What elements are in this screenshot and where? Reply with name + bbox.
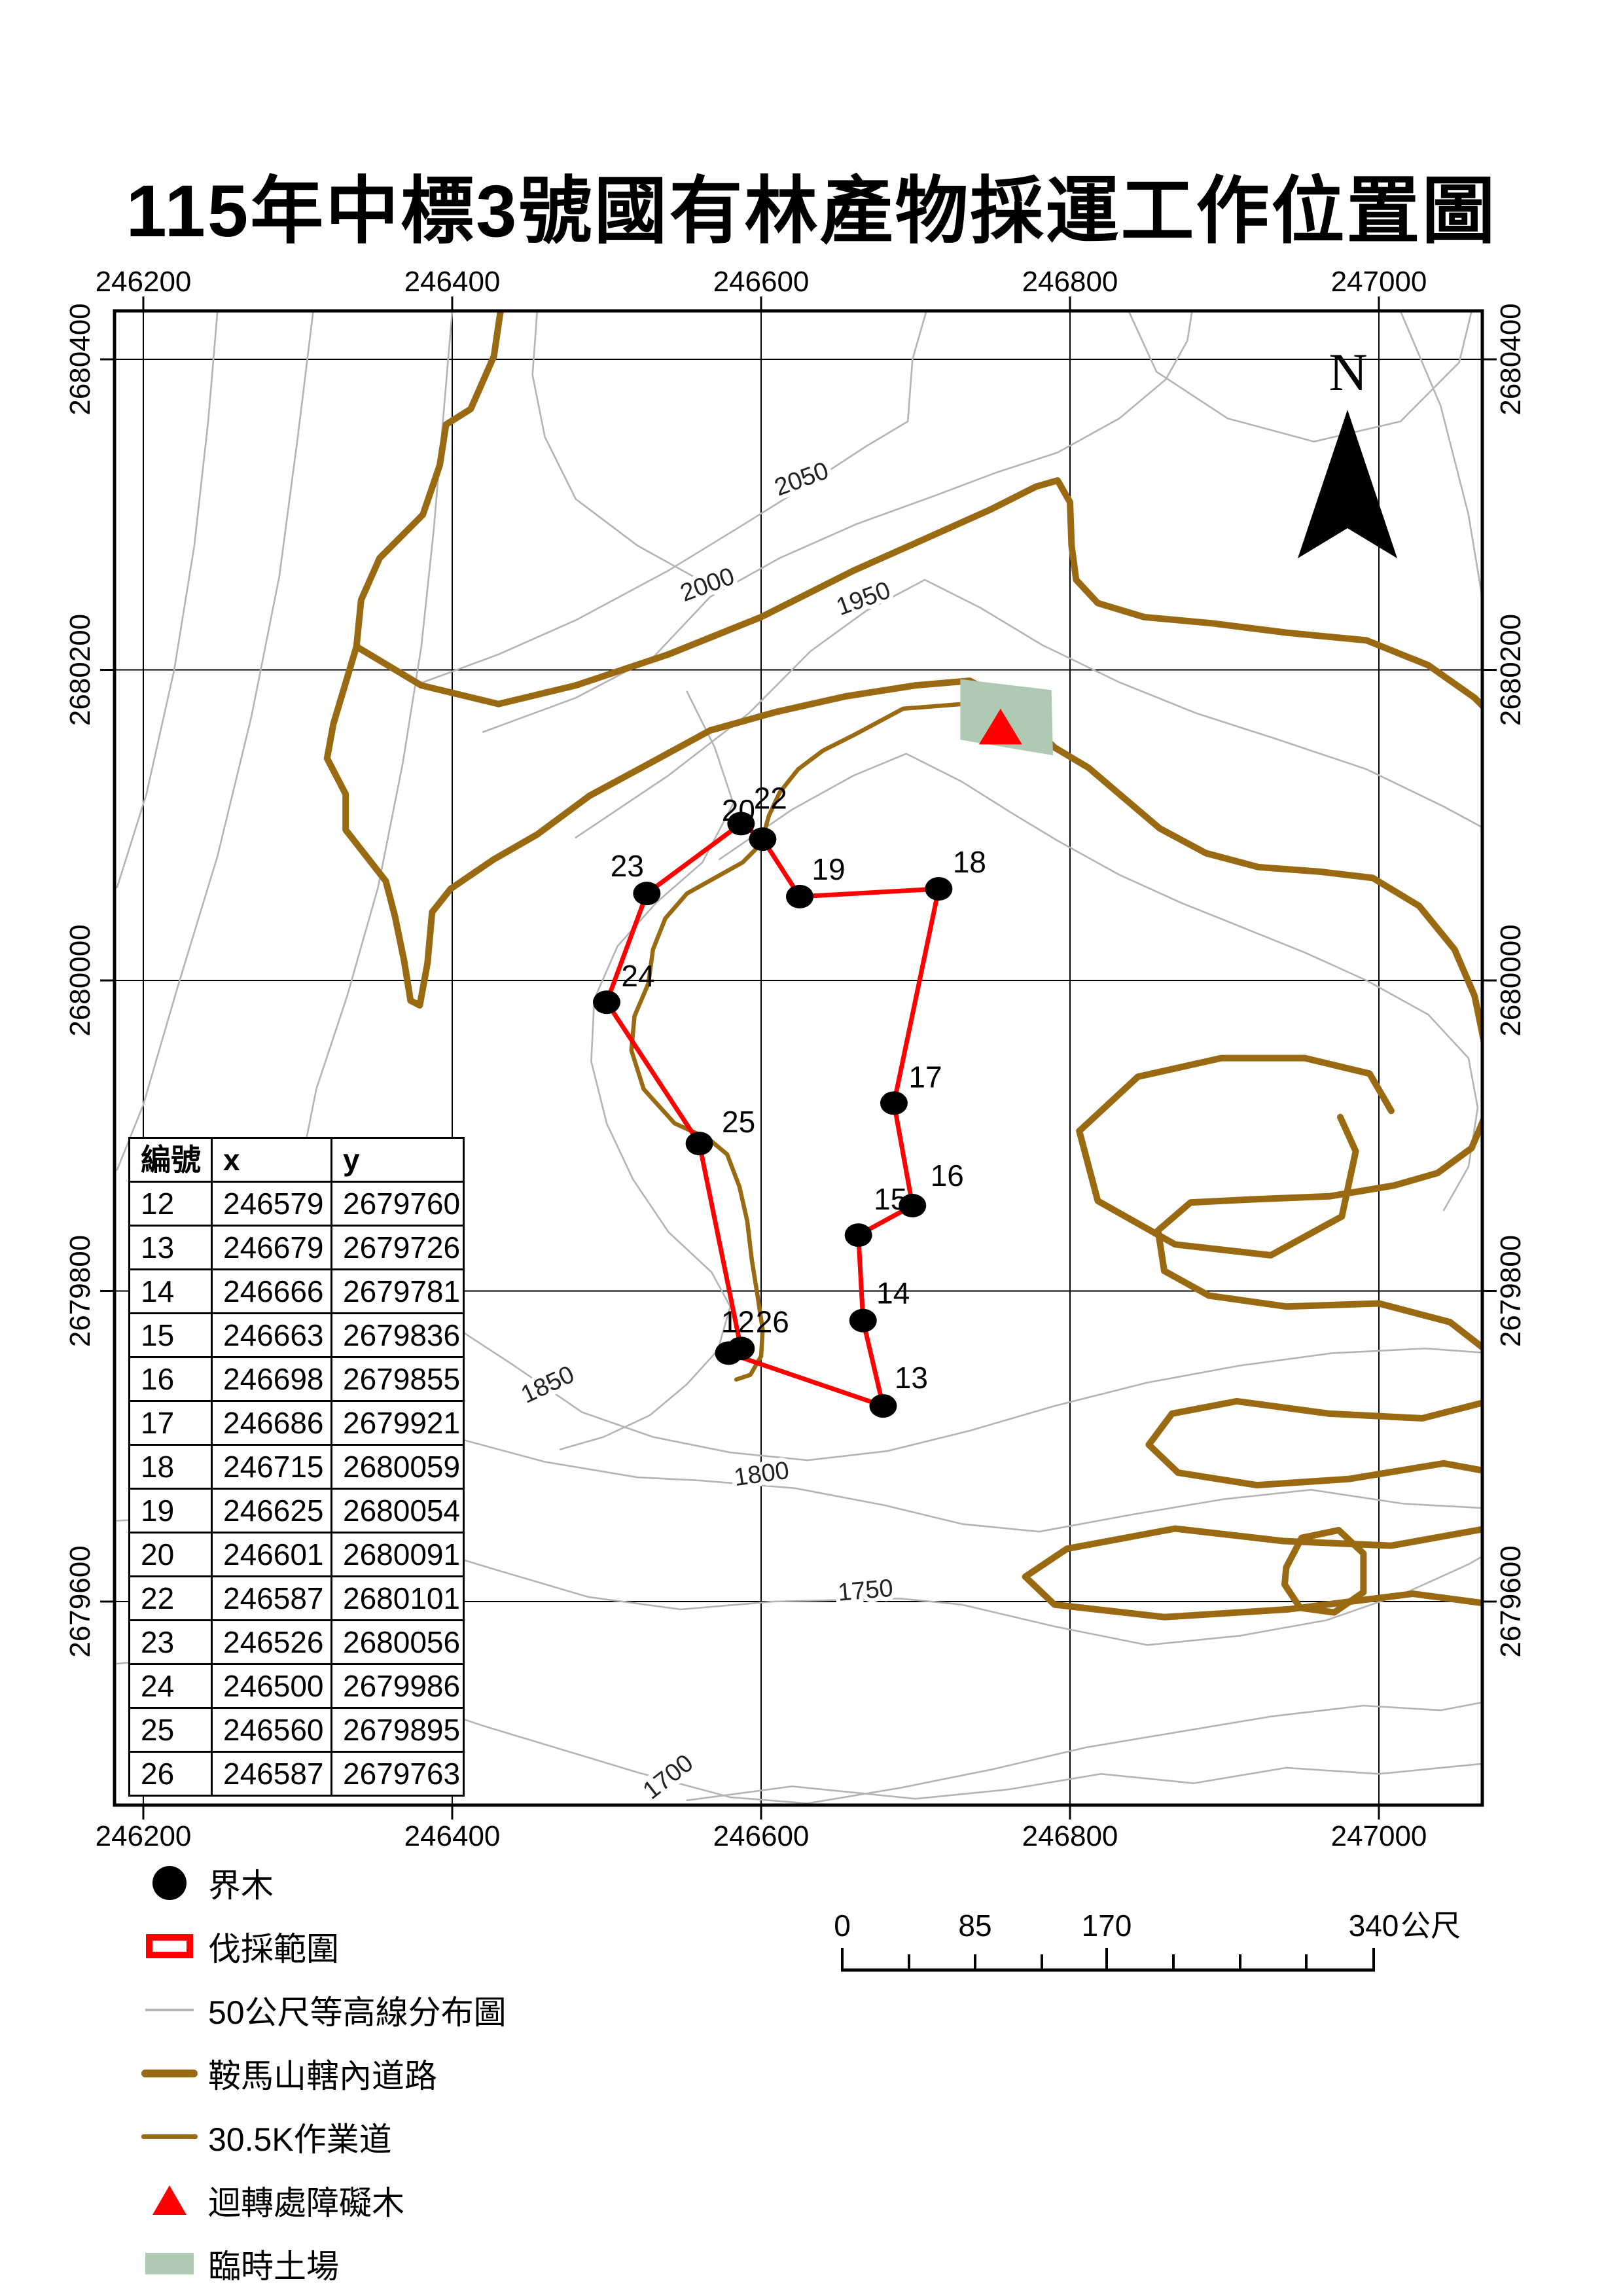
axis-label-right: 2680200 (1495, 614, 1527, 726)
boundary-tree-point (899, 1194, 926, 1217)
legend-label: 伐採範圍 (208, 1923, 339, 1970)
boundary-tree-label: 19 (811, 852, 845, 886)
axis-label-top: 246600 (713, 266, 810, 298)
table-cell: 246686 (212, 1401, 332, 1445)
table-cell: 246666 (212, 1270, 332, 1314)
boundary-tree-label: 26 (756, 1304, 789, 1338)
table-row: 202466012680091 (130, 1533, 464, 1577)
coordinate-table-body: 1224657926797601324667926797261424666626… (130, 1182, 464, 1796)
table-cell: 20 (130, 1533, 212, 1577)
legend-rect-green-icon (131, 2253, 208, 2274)
legend-item: 50公尺等高線分布圖 (131, 1978, 507, 2041)
axis-label-left: 2680400 (64, 303, 96, 415)
contour-label: 1750 (836, 1575, 894, 1607)
legend-label: 臨時土場 (208, 2240, 339, 2287)
north-arrow-icon (1298, 410, 1397, 558)
legend-label: 30.5K作業道 (208, 2113, 392, 2161)
table-cell: 2680101 (332, 1577, 464, 1621)
boundary-tree-label: 23 (611, 849, 644, 883)
road-main (1079, 1058, 1391, 1255)
table-cell: 13 (130, 1226, 212, 1270)
table-row: 172466862679921 (130, 1401, 464, 1445)
contour-label: 2050 (771, 457, 832, 501)
coordinate-table-header: 編號xy (130, 1138, 464, 1182)
table-cell: 2679763 (332, 1752, 464, 1796)
contour-line (423, 312, 926, 683)
table-cell: 2679836 (332, 1314, 464, 1357)
table-cell: 2679726 (332, 1226, 464, 1270)
table-cell: 2680091 (332, 1533, 464, 1577)
boundary-tree-point (786, 885, 813, 908)
axis-label-bottom: 246600 (713, 1820, 810, 1852)
table-cell: 25 (130, 1708, 212, 1752)
road-work (632, 704, 962, 1380)
coordinate-table: 編號xy 12246579267976013246679267972614246… (128, 1137, 465, 1797)
table-cell: 246526 (212, 1621, 332, 1664)
boundary-tree-label: 22 (754, 781, 787, 815)
boundary-tree-point (633, 882, 660, 905)
boundary-tree-point (849, 1309, 877, 1333)
table-cell: 2680054 (332, 1489, 464, 1533)
table-cell: 246560 (212, 1708, 332, 1752)
table-cell: 19 (130, 1489, 212, 1533)
table-cell: 2679921 (332, 1401, 464, 1445)
contour-line (310, 1235, 1490, 1460)
axis-label-left: 2679600 (64, 1545, 96, 1657)
table-cell: 2679760 (332, 1182, 464, 1226)
legend-item: 30.5K作業道 (131, 2105, 507, 2168)
legend-tri-red-icon (131, 2185, 208, 2215)
boundary-tree-point (686, 1132, 713, 1155)
scalebar-unit: 公尺 (1400, 1909, 1461, 1943)
axis-label-bottom: 246800 (1022, 1820, 1118, 1852)
legend-item: 迴轉處障礙木 (131, 2168, 507, 2232)
contour-line (483, 312, 1192, 732)
table-header-row: 編號xy (130, 1138, 464, 1182)
contour-line (533, 312, 700, 580)
table-row: 252465602679895 (130, 1708, 464, 1752)
boundary-tree-label: 24 (621, 959, 654, 993)
legend-label: 鞍馬山轄內道路 (208, 2050, 437, 2097)
axis-label-left: 2679800 (64, 1235, 96, 1347)
contour-line (117, 312, 217, 888)
axis-label-top: 246200 (96, 266, 192, 298)
table-cell: 2679855 (332, 1357, 464, 1401)
table-row: 152466632679836 (130, 1314, 464, 1357)
boundary-tree-label: 12 (721, 1304, 755, 1338)
legend-label: 50公尺等高線分布圖 (208, 1986, 507, 2034)
contour-line (560, 692, 733, 1450)
scalebar-label: 340 (1349, 1909, 1399, 1943)
table-row: 242465002679986 (130, 1664, 464, 1708)
table-cell: 246587 (212, 1577, 332, 1621)
table-cell: 26 (130, 1752, 212, 1796)
table-cell: 246698 (212, 1357, 332, 1401)
axis-label-bottom: 246200 (96, 1820, 192, 1852)
legend-line-gray-icon (131, 2009, 208, 2011)
table-cell: 246625 (212, 1489, 332, 1533)
axis-label-right: 2680000 (1495, 924, 1527, 1036)
road-main (1149, 1400, 1495, 1486)
legend-item: 臨時土場 (131, 2232, 507, 2295)
contour-label: 1700 (638, 1749, 698, 1805)
axis-label-right: 2680400 (1495, 303, 1527, 415)
boundary-tree-label: 16 (931, 1158, 964, 1193)
boundary-tree-label: 18 (953, 845, 986, 879)
axis-label-right: 2679600 (1495, 1545, 1527, 1657)
table-row: 122465792679760 (130, 1182, 464, 1226)
axis-label-bottom: 246400 (404, 1820, 501, 1852)
boundary-tree-point (593, 990, 620, 1014)
boundary-tree-point (880, 1091, 908, 1115)
legend: 界木伐採範圍50公尺等高線分布圖鞍馬山轄內道路30.5K作業道迴轉處障礙木臨時土… (131, 1851, 507, 2295)
table-cell: 2679781 (332, 1270, 464, 1314)
scalebar-label: 0 (834, 1909, 851, 1943)
table-row: 262465872679763 (130, 1752, 464, 1796)
legend-label: 迴轉處障礙木 (208, 2177, 404, 2224)
axis-label-top: 246400 (404, 266, 501, 298)
axis-label-left: 2680200 (64, 614, 96, 726)
table-cell: 2679986 (332, 1664, 464, 1708)
table-row: 132466792679726 (130, 1226, 464, 1270)
boundary-tree-label: 25 (722, 1105, 755, 1139)
boundary-tree-label: 14 (876, 1276, 910, 1310)
boundary-tree-point (869, 1394, 897, 1418)
table-cell: 16 (130, 1357, 212, 1401)
legend-rect-red-icon (131, 1934, 208, 1958)
legend-item: 界木 (131, 1851, 507, 1914)
table-row: 222465872680101 (130, 1577, 464, 1621)
contour-line (117, 312, 313, 1170)
table-row: 162466982679855 (130, 1357, 464, 1401)
table-cell: 246500 (212, 1664, 332, 1708)
contour-line (719, 754, 1478, 1211)
contour-label: 1850 (517, 1361, 579, 1409)
table-cell: 2680059 (332, 1445, 464, 1489)
legend-line-thick-icon (131, 2070, 208, 2077)
table-cell: 246587 (212, 1752, 332, 1796)
table-cell: 12 (130, 1182, 212, 1226)
table-cell: 2680056 (332, 1621, 464, 1664)
contour-line (452, 1437, 1490, 1532)
boundary-tree-point (925, 877, 952, 901)
legend-item: 伐採範圍 (131, 1914, 507, 1978)
boundary-tree-point (749, 827, 776, 851)
table-cell: 246679 (212, 1226, 332, 1270)
table-row: 232465262680056 (130, 1621, 464, 1664)
legend-line-thin-icon (131, 2134, 208, 2139)
table-cell: 17 (130, 1401, 212, 1445)
table-cell: 2679895 (332, 1708, 464, 1752)
table-cell: 22 (130, 1577, 212, 1621)
table-cell: 24 (130, 1664, 212, 1708)
contour-line (1400, 312, 1490, 655)
table-cell: 246663 (212, 1314, 332, 1357)
table-header-cell: y (332, 1138, 464, 1182)
table-cell: 15 (130, 1314, 212, 1357)
page: 115年中標3號國有林產物採運工作位置圖 2050200019501850180… (0, 0, 1623, 2296)
contour-line (687, 1763, 1490, 1801)
contour-label: 1950 (832, 577, 894, 621)
legend-label: 界木 (208, 1859, 274, 1907)
boundary-tree-point (845, 1223, 872, 1247)
legend-item: 鞍馬山轄內道路 (131, 2041, 507, 2105)
table-header-cell: 編號 (130, 1138, 212, 1182)
scalebar-label: 85 (958, 1909, 991, 1943)
north-label: N (1329, 342, 1367, 402)
axis-label-top: 246800 (1022, 266, 1118, 298)
table-row: 182467152680059 (130, 1445, 464, 1489)
axis-label-bottom: 247000 (1331, 1820, 1427, 1852)
table-cell: 18 (130, 1445, 212, 1489)
axis-label-left: 2680000 (64, 924, 96, 1036)
legend-dot-icon (131, 1866, 208, 1900)
boundary-tree-label: 17 (908, 1060, 942, 1094)
table-header-cell: x (212, 1138, 332, 1182)
table-cell: 246601 (212, 1533, 332, 1577)
table-cell: 246579 (212, 1182, 332, 1226)
road-main (1026, 1527, 1495, 1617)
table-cell: 246715 (212, 1445, 332, 1489)
table-row: 192466252680054 (130, 1489, 464, 1533)
boundary-tree-label: 13 (895, 1361, 928, 1395)
table-row: 142466662679781 (130, 1270, 464, 1314)
axis-label-right: 2679800 (1495, 1235, 1527, 1347)
boundary-tree-point (727, 812, 755, 835)
boundary-tree-point (727, 1336, 755, 1360)
scalebar-label: 170 (1082, 1909, 1132, 1943)
table-cell: 23 (130, 1621, 212, 1664)
contour-line (1129, 312, 1472, 442)
contour-line (298, 312, 452, 1201)
table-cell: 14 (130, 1270, 212, 1314)
axis-label-top: 247000 (1331, 266, 1427, 298)
